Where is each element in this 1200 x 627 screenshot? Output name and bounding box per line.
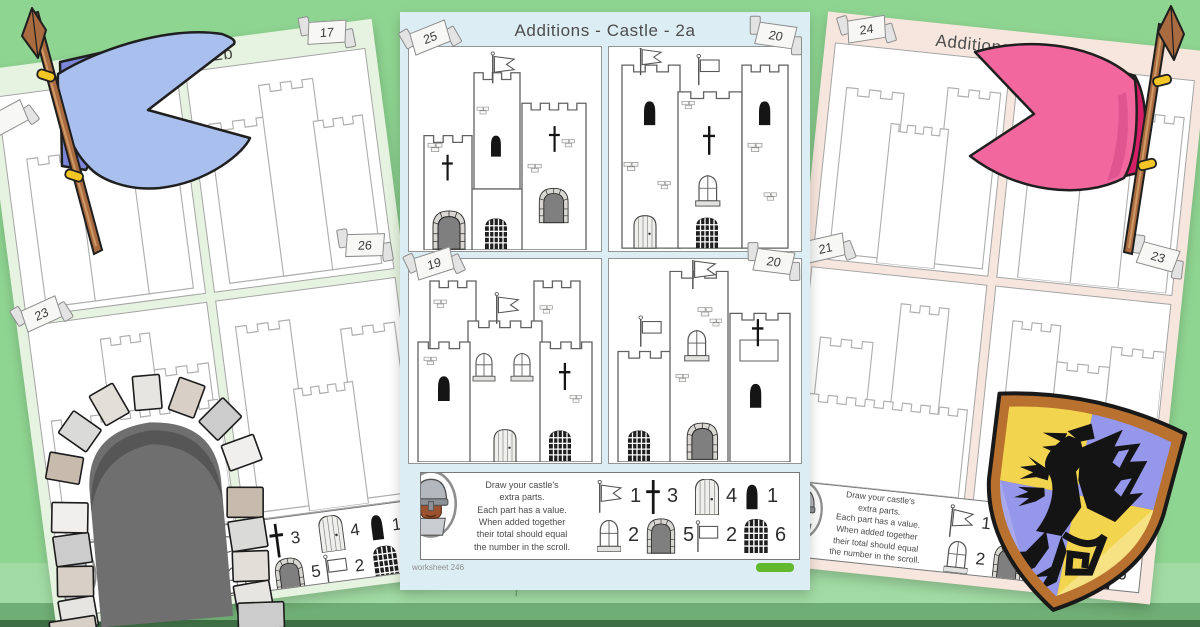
legend-item-stone-arch-door: 5 — [646, 518, 694, 554]
rectangle-flag-icon — [695, 520, 719, 552]
arrow-slit-icon — [744, 480, 760, 514]
scroll-number-badge: 17 — [297, 19, 358, 44]
worksheet-page-castle-2a: Additions - Castle - 2a — [400, 12, 810, 590]
legend-item-cross: 3 — [994, 508, 1028, 545]
legend-item-stone-arch-door: 5 — [272, 553, 323, 595]
legend-item-wooden-door: 4 — [317, 512, 362, 553]
instructions: Draw your castle'sextra parts. Each part… — [461, 479, 583, 553]
legend-item-rectangle-flag: 2 — [322, 550, 366, 587]
scroll-number: 17 — [307, 19, 346, 44]
legend-item-arrow-slit: 1 — [744, 480, 778, 514]
castle-drawing — [610, 260, 800, 462]
legend-value: 4 — [1073, 523, 1085, 544]
rectangle-flag-icon — [322, 552, 350, 587]
legend-item-portcullis: 6 — [1085, 554, 1129, 592]
legend-item-arrow-slit: 1 — [367, 507, 404, 545]
legend-value: 2 — [354, 556, 366, 577]
legend-value: 2 — [1069, 559, 1081, 580]
legend-item-arched-window: 2 — [597, 520, 639, 552]
arched-window-icon — [943, 540, 970, 574]
legend-value: 3 — [667, 485, 678, 508]
legend-value: 4 — [349, 520, 361, 541]
castle-drawing — [410, 48, 600, 250]
worksheet-page-right: Additions - 24 21 23 — [770, 12, 1200, 605]
wooden-door-icon — [1041, 512, 1069, 550]
castle-puzzle-panel — [789, 266, 988, 500]
legend-value: 1 — [630, 485, 641, 508]
legend-item-pennant-flag: 1 — [597, 480, 641, 513]
portcullis-icon — [1085, 554, 1112, 590]
legend-item-arrow-slit: 1 — [1089, 518, 1125, 555]
castle-outline-drawing — [791, 268, 985, 498]
legend-grid: 1 3 4 1 2 5 2 6 — [583, 473, 799, 559]
arrow-slit-icon — [367, 510, 387, 546]
legend-item-pennant-flag: 1 — [218, 526, 264, 564]
legend-item-arched-window: 2 — [943, 540, 987, 576]
rectangle-flag-icon — [1038, 550, 1065, 584]
castle-drawing — [410, 260, 600, 462]
portcullis-icon — [372, 544, 400, 581]
legend-item-portcullis: 6 — [744, 519, 786, 553]
legend-item-wooden-door: 4 — [1041, 512, 1085, 552]
scroll-number-badge: 26 — [334, 231, 396, 258]
stone-arch-door-icon — [990, 543, 1024, 582]
worksheet-page-castle-2b: - Castle - 2b 17 23 26 — [0, 19, 445, 627]
legend-value: 3 — [1016, 517, 1028, 538]
puzzle-grid — [789, 42, 1195, 519]
legend-value: 5 — [683, 524, 694, 547]
scroll-number-badge: 24 — [836, 16, 897, 41]
castle-puzzle-panel — [27, 302, 237, 547]
legend-box: Draw your castle'sextra parts. Each part… — [420, 472, 800, 560]
pennant-flag-icon — [597, 480, 623, 513]
stone-arch-door-icon — [272, 555, 306, 595]
arched-window-icon — [597, 520, 621, 552]
cross-icon — [268, 523, 286, 559]
castle-outline-drawing — [975, 288, 1169, 518]
legend-value: 1 — [1112, 527, 1124, 548]
arrow-slit-icon — [1089, 518, 1108, 553]
instructions: Draw your castle'sextra parts. Each part… — [93, 528, 213, 612]
legend-value: 1 — [252, 533, 264, 554]
pennant-flag-icon — [947, 504, 976, 540]
scroll-number: 24 — [847, 14, 886, 43]
scroll-number: 26 — [345, 233, 385, 257]
legend-item-rectangle-flag: 2 — [695, 520, 737, 552]
scroll-number: 20 — [752, 247, 795, 274]
legend-item-stone-arch-door: 5 — [990, 543, 1040, 584]
legend-value: 6 — [1116, 564, 1128, 585]
castle-puzzle-panel-q1 — [408, 46, 602, 252]
legend-item-wooden-door: 4 — [695, 479, 737, 515]
castle-puzzle-panel — [973, 286, 1172, 520]
scroll-number: 20 — [754, 21, 797, 49]
castle-drawing — [610, 48, 800, 250]
brand-logo — [756, 563, 794, 572]
legend-item-cross: 3 — [268, 521, 303, 559]
castle-puzzle-panel — [215, 277, 425, 522]
knight-avatar — [421, 473, 457, 541]
stone-arch-door-icon — [646, 518, 676, 554]
legend-value: 4 — [726, 485, 737, 508]
cross-icon — [646, 480, 660, 514]
castle-outline-drawing — [217, 279, 422, 519]
legend-value: 1 — [980, 513, 992, 534]
legend-value: 6 — [775, 524, 786, 547]
wooden-door-icon — [317, 514, 345, 553]
worksheet-number: worksheet 246 — [412, 563, 464, 572]
legend-value: 2 — [726, 524, 737, 547]
legend-value: 2 — [628, 524, 639, 547]
castle-puzzle-panel-q4 — [608, 258, 802, 464]
portcullis-icon — [744, 519, 768, 553]
legend-value: 3 — [290, 528, 302, 549]
pennant-flag-icon — [218, 528, 248, 564]
legend-value: 1 — [767, 485, 778, 508]
instructions: Draw your castle'sextra parts. Each part… — [818, 487, 937, 569]
legend-item-rectangle-flag: 2 — [1038, 550, 1082, 586]
legend-value: 2 — [255, 569, 267, 590]
legend-value: 5 — [310, 561, 322, 582]
castle-outline-drawing — [29, 304, 234, 544]
promo-background: - Castle - 2b 17 23 26 — [0, 0, 1200, 627]
castle-puzzle-panel-q2 — [608, 46, 802, 252]
legend-item-pennant-flag: 1 — [947, 504, 993, 541]
arched-window-icon — [223, 565, 251, 600]
legend-value: 2 — [975, 549, 987, 570]
legend-item-cross: 3 — [646, 480, 678, 514]
puzzle-grid — [408, 46, 802, 464]
grass-dark-band — [0, 620, 1200, 627]
cross-icon — [994, 508, 1011, 543]
castle-puzzle-panel-q3 — [408, 258, 602, 464]
legend-item-arched-window: 2 — [223, 563, 267, 600]
wooden-door-icon — [695, 479, 719, 515]
